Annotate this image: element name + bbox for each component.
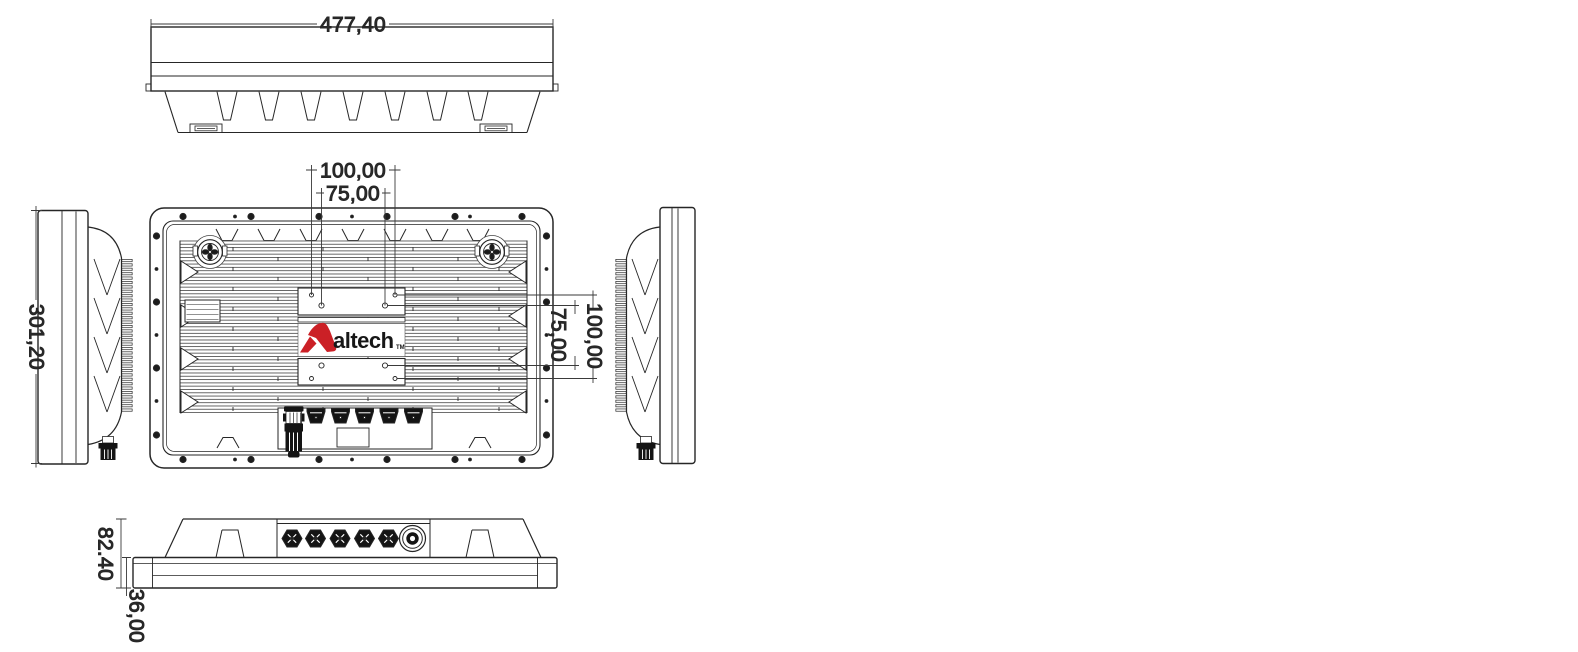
dim-vesa-height-inner: 75,00 — [547, 308, 570, 362]
dim-overall-width: 477,40 — [320, 13, 386, 36]
fin-grooves-left — [94, 259, 120, 412]
hex-cable-glands — [282, 530, 399, 547]
connector-section-bottom — [277, 519, 430, 558]
top-bracket-right — [480, 124, 512, 133]
dim-overall-height: 301,20 — [25, 304, 48, 370]
technical-drawing: 477,40 altech — [0, 0, 1578, 652]
fin-grooves-right — [632, 259, 658, 412]
top-bracket-left — [190, 124, 222, 133]
bottom-view: 82.40 36,00 — [94, 519, 557, 643]
connector-right-side — [637, 437, 656, 461]
round-connector-bottom — [400, 526, 426, 552]
front-panel-bottom — [133, 558, 557, 589]
vesa-plate-lower — [298, 359, 405, 386]
foot-right — [466, 530, 494, 558]
left-side-view: 301,20 — [25, 206, 133, 468]
rear-view: altech TM 100,00 75,00 — [150, 159, 606, 468]
foot-left — [216, 530, 244, 558]
logo-text: altech — [333, 328, 394, 353]
drawing-canvas: 477,40 altech — [0, 0, 1578, 652]
right-side-view — [616, 208, 696, 464]
dim-total-depth: 82.40 — [94, 527, 117, 581]
heatsink-notches-top — [217, 92, 488, 120]
top-view: 477,40 — [146, 13, 558, 132]
rating-label-plate — [185, 300, 220, 322]
dim-vesa-height-outer: 100,00 — [583, 303, 606, 369]
dim-vesa-width-inner: 75,00 — [326, 182, 380, 205]
dim-front-depth: 36,00 — [125, 589, 148, 643]
vesa-plate-upper — [298, 288, 405, 315]
dim-depth-lines — [116, 519, 131, 596]
power-connector-rear — [283, 407, 305, 458]
center-strip — [298, 318, 405, 323]
logo-trademark: TM — [396, 345, 405, 351]
connector-label-plate — [337, 428, 369, 447]
dim-vesa-width-outer: 100,00 — [320, 159, 386, 182]
